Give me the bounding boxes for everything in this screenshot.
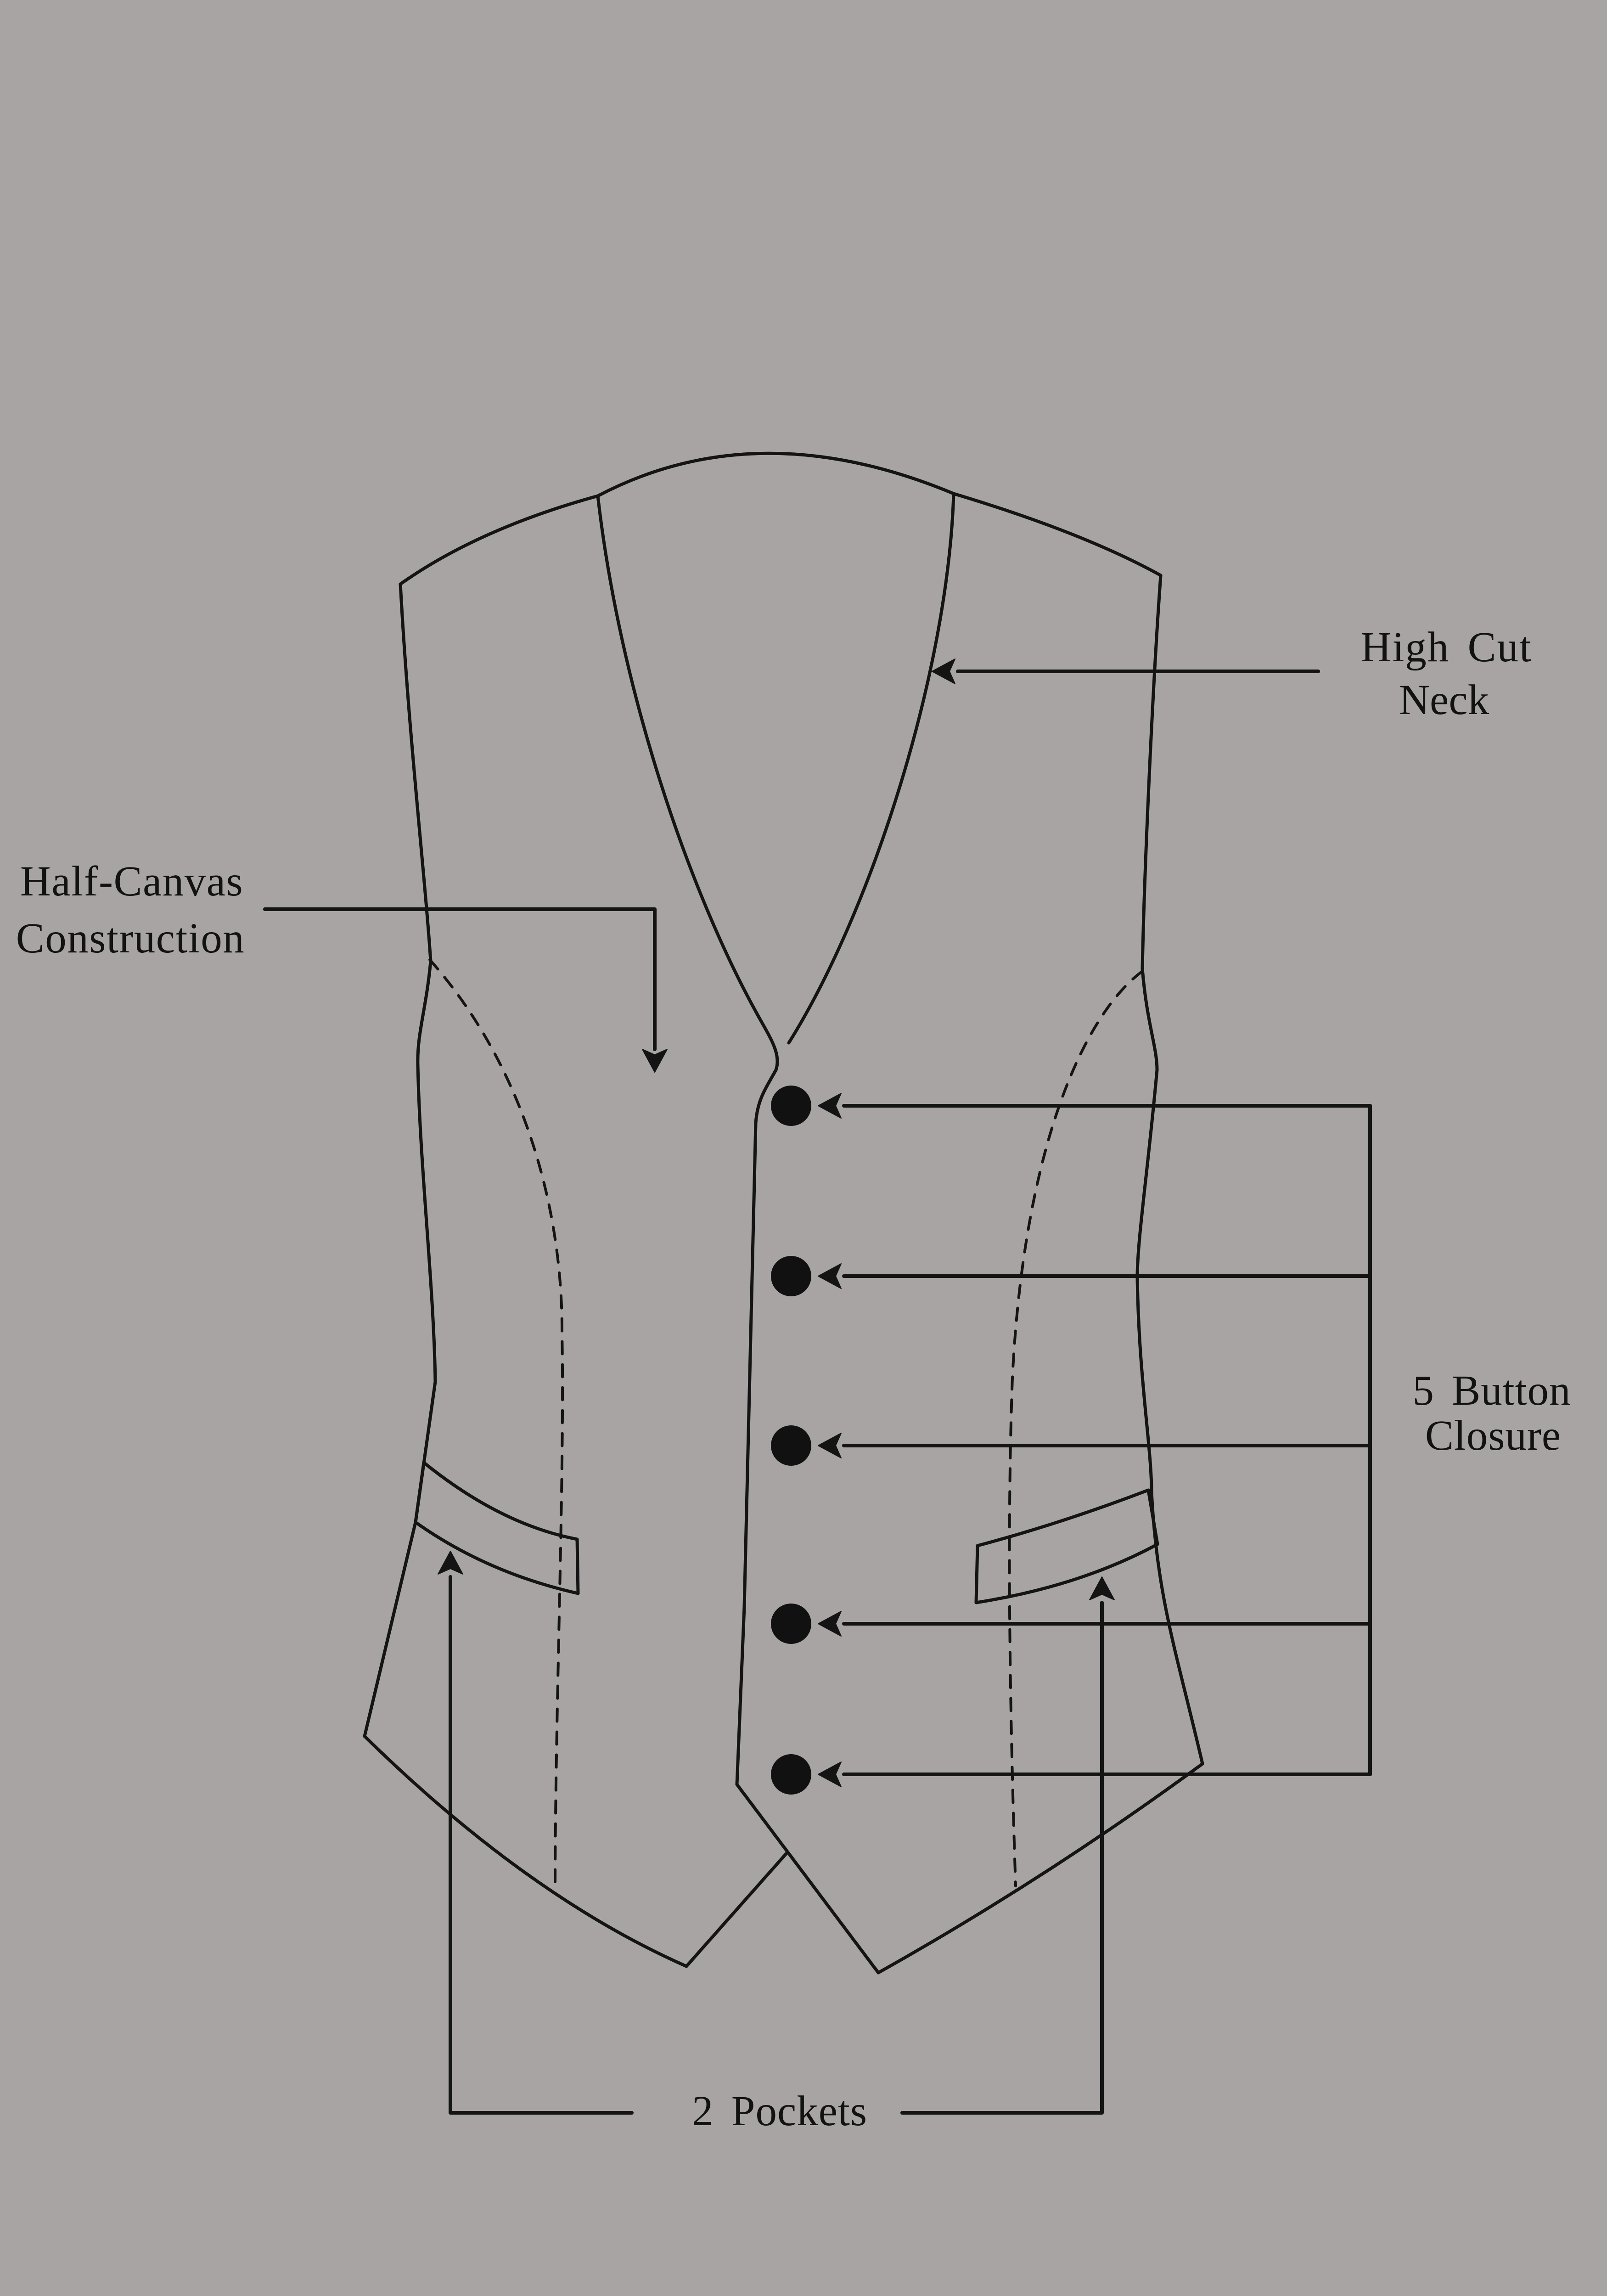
svg-text:2 Pockets: 2 Pockets (692, 2088, 867, 2135)
svg-text:High Cut: High Cut (1360, 624, 1532, 671)
svg-text:Half-Canvas: Half-Canvas (20, 858, 244, 905)
svg-text:Construction: Construction (16, 915, 245, 962)
svg-text:5 Button: 5 Button (1413, 1367, 1571, 1414)
svg-text:Neck: Neck (1399, 676, 1489, 724)
svg-text:Closure: Closure (1425, 1412, 1561, 1459)
